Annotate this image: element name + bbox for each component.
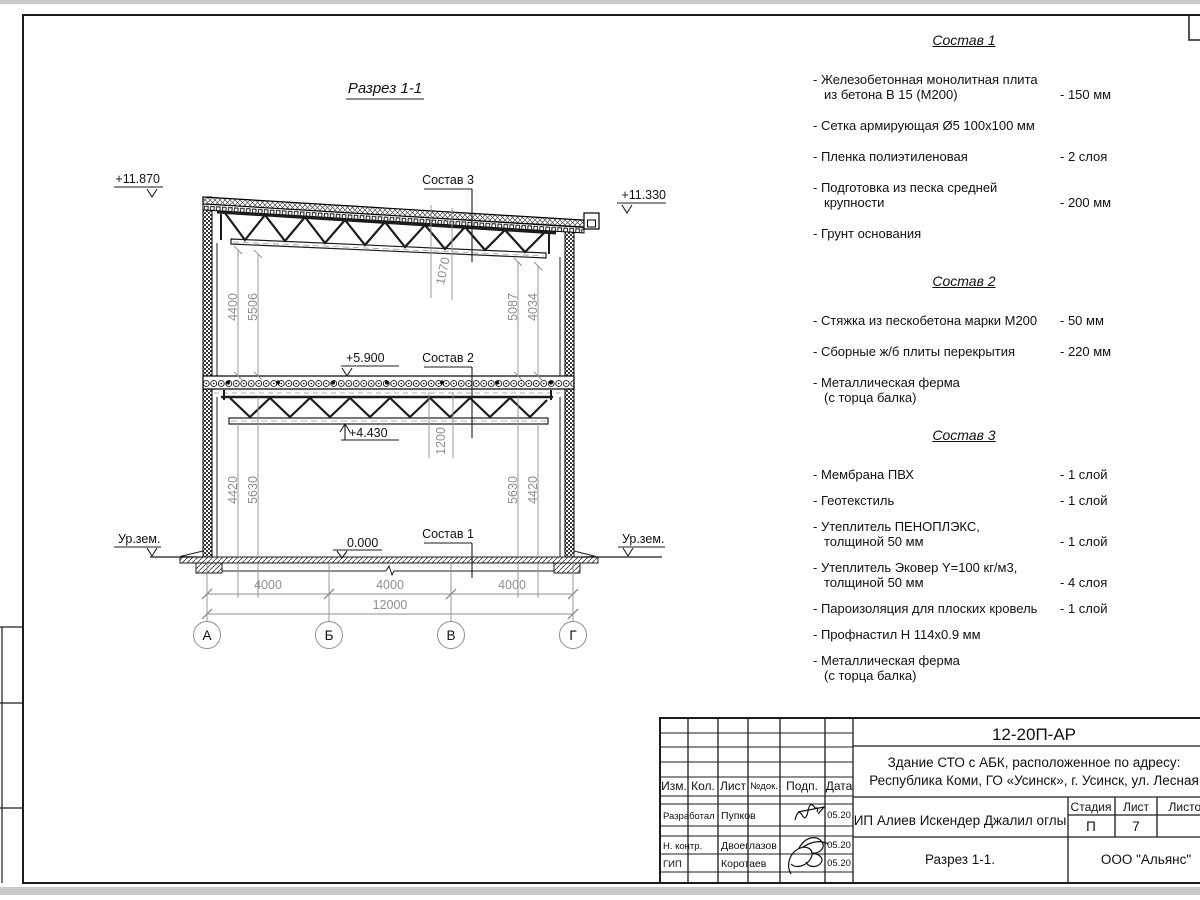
svg-text:Лист: Лист [720,779,747,793]
dim-lower-left-outer: 4420 [226,476,240,504]
dim-lower-right-outer: 4420 [526,476,540,504]
signature-gip [789,838,828,874]
dim-lower-mid: 1200 [434,427,448,455]
svg-text:Состав 1: Состав 1 [422,527,474,541]
dim-upper-right-outer: 4034 [526,293,540,321]
list-item: - Геотекстиль - 1 слой [813,493,1115,508]
list-item: - Металлическая ферма(с торца балка) [813,375,1115,405]
composition-heading: Состав 1 [813,33,1115,48]
svg-text:№док.: №док. [750,781,778,792]
svg-text:В: В [446,628,455,643]
signatures [789,805,828,874]
sheets-label: Листов [1169,800,1200,814]
frame-corner-box [1189,15,1200,40]
svg-text:Состав 3: Состав 3 [422,173,474,187]
dim-upper-right-inner: 5087 [506,293,520,321]
list-item: - Сборные ж/б плиты перекрытия - 220 мм [813,344,1115,359]
svg-text:+11.870: +11.870 [115,172,160,186]
svg-text:Подп.: Подп. [786,779,818,793]
signature-developer [795,805,824,820]
svg-text:Кол.: Кол. [691,779,715,793]
svg-text:+11.330: +11.330 [621,188,666,202]
svg-text:05.20: 05.20 [827,810,851,821]
section-view: +11.870 +11.330 +5.900 +4.430 0.000 Ур.з… [114,172,666,649]
svg-text:Ур.зем.: Ур.зем. [118,532,160,546]
foundation-right [554,563,580,573]
title-block: Изм. Кол. Лист №док. Подп. Дата Разработ… [660,718,1200,883]
svg-text:05.20: 05.20 [827,858,851,869]
svg-text:Ур.зем.: Ур.зем. [622,532,664,546]
foundation-left [196,563,222,573]
object-line2: Республика Коми, ГО «Усинск», г. Усинск,… [869,773,1199,788]
ground-level-left: Ур.зем. [114,532,161,556]
svg-text:Б: Б [325,628,334,643]
floor-slab [203,376,574,393]
svg-text:0.000: 0.000 [347,536,378,550]
dim-lower-left-inner: 5630 [246,476,260,504]
dim-span-2: 4000 [376,578,404,592]
company-name: ООО "Альянс" [1101,852,1191,867]
drawing-sheet: Разрез 1-1 [0,0,1200,900]
list-item: - Утеплитель ПЕНОПЛЭКС,толщиной 50 мм - … [813,519,1115,549]
svg-text:Н. контр.: Н. контр. [663,841,702,852]
list-item: - Подготовка из песка среднейкрупности -… [813,180,1115,210]
row-developer: Разработал Пупков 05.20 [663,810,851,822]
svg-text:Дата: Дата [826,779,853,793]
ground-slab [150,551,662,575]
list-item: - Металлическая ферма(с торца балка) [813,653,1115,683]
composition-list-3: Состав 3 - Мембрана ПВХ - 1 слой - Геоте… [813,428,1115,694]
left-margin-boxes [0,627,23,883]
right-wall [565,229,574,557]
svg-text:+5.900: +5.900 [346,351,385,365]
elevation-roof-right: +11.330 [617,188,666,213]
scan-edge-bottom [0,887,1200,895]
composition-list-2: Состав 2 - Стяжка из пескобетона марки М… [813,274,1115,421]
dim-upper-left-outer: 4400 [226,293,240,321]
elevation-roof-left: +11.870 [114,172,163,197]
elevation-floor2: +5.900 [341,351,399,376]
sheet-value: 7 [1132,819,1140,834]
object-line1: Здание СТО с АБК, расположенное по адрес… [888,755,1181,770]
composition-list-1: Состав 1 - Железобетонная монолитная пли… [813,33,1115,257]
lower-truss [221,390,553,424]
list-item: - Пароизоляция для плоских кровель - 1 с… [813,601,1115,616]
svg-text:+4.430: +4.430 [349,426,388,440]
svg-text:ГИП: ГИП [663,859,682,870]
doc-number: 12-20П-АР [992,725,1076,744]
dim-span-3: 4000 [498,578,526,592]
sheet-label: Лист [1123,800,1150,814]
stage-value: П [1086,819,1096,834]
list-item: - Грунт основания [813,226,1115,241]
svg-text:Состав 2: Состав 2 [422,351,474,365]
list-item: - Стяжка из пескобетона марки М200 - 50 … [813,313,1115,328]
stage-label: Стадия [1071,800,1112,814]
list-item: - Пленка полиэтиленовая - 2 слоя [813,149,1115,164]
ground-level-right: Ур.зем. [618,532,665,556]
title-block-rows: Разработал Пупков 05.20 Н. контр. Двоегл… [663,805,851,874]
dim-lower-right-inner: 5630 [506,476,520,504]
list-item: - Мембрана ПВХ - 1 слой [813,467,1115,482]
svg-text:А: А [202,628,211,643]
list-item: - Утеплитель Эковер Y=100 кг/м3,толщиной… [813,560,1115,590]
row-gip: ГИП Коротаев 05.20 [663,858,851,870]
title-block-columns: Изм. Кол. Лист №док. Подп. Дата [661,779,852,793]
list-item: - Сетка армирующая Ø5 100х100 мм [813,118,1115,133]
svg-text:Пупков: Пупков [721,810,756,822]
svg-text:Г: Г [569,628,577,643]
elevation-zero: 0.000 [333,536,382,558]
dim-upper-left-inner: 5506 [246,293,260,321]
svg-text:05.20: 05.20 [827,840,851,851]
horizontal-dimensions: 4000 4000 4000 12000 [202,563,578,621]
roof-edge-cap [584,213,599,229]
composition-heading: Состав 2 [813,274,1115,289]
dim-total: 12000 [373,598,408,612]
ground-line [150,551,662,557]
view-title-text: Разрез 1-1 [348,80,422,97]
leader-sostav2: Состав 2 [422,351,474,438]
list-item: - Железобетонная монолитная плитаиз бето… [813,72,1115,102]
sheet-title: Разрез 1-1. [925,852,995,867]
svg-text:Двоеглазов: Двоеглазов [721,840,777,852]
client-name: ИП Алиев Искендер Джалил оглы [854,813,1067,828]
dim-upper-mid: 1070 [433,256,452,286]
list-item: - Профнастил Н 114х0.9 мм [813,627,1115,642]
axis-bubbles: А Б В Г [194,622,587,649]
elevation-truss-bottom: +4.430 [340,424,399,440]
svg-text:Коротаев: Коротаев [721,858,767,870]
composition-heading: Состав 3 [813,428,1115,443]
dim-span-1: 4000 [254,578,282,592]
svg-text:Разработал: Разработал [663,811,715,822]
svg-text:Изм.: Изм. [661,779,687,793]
scan-edge-top [0,0,1200,4]
leader-sostav1: Состав 1 [422,527,474,578]
view-title: Разрез 1-1 [346,80,424,99]
